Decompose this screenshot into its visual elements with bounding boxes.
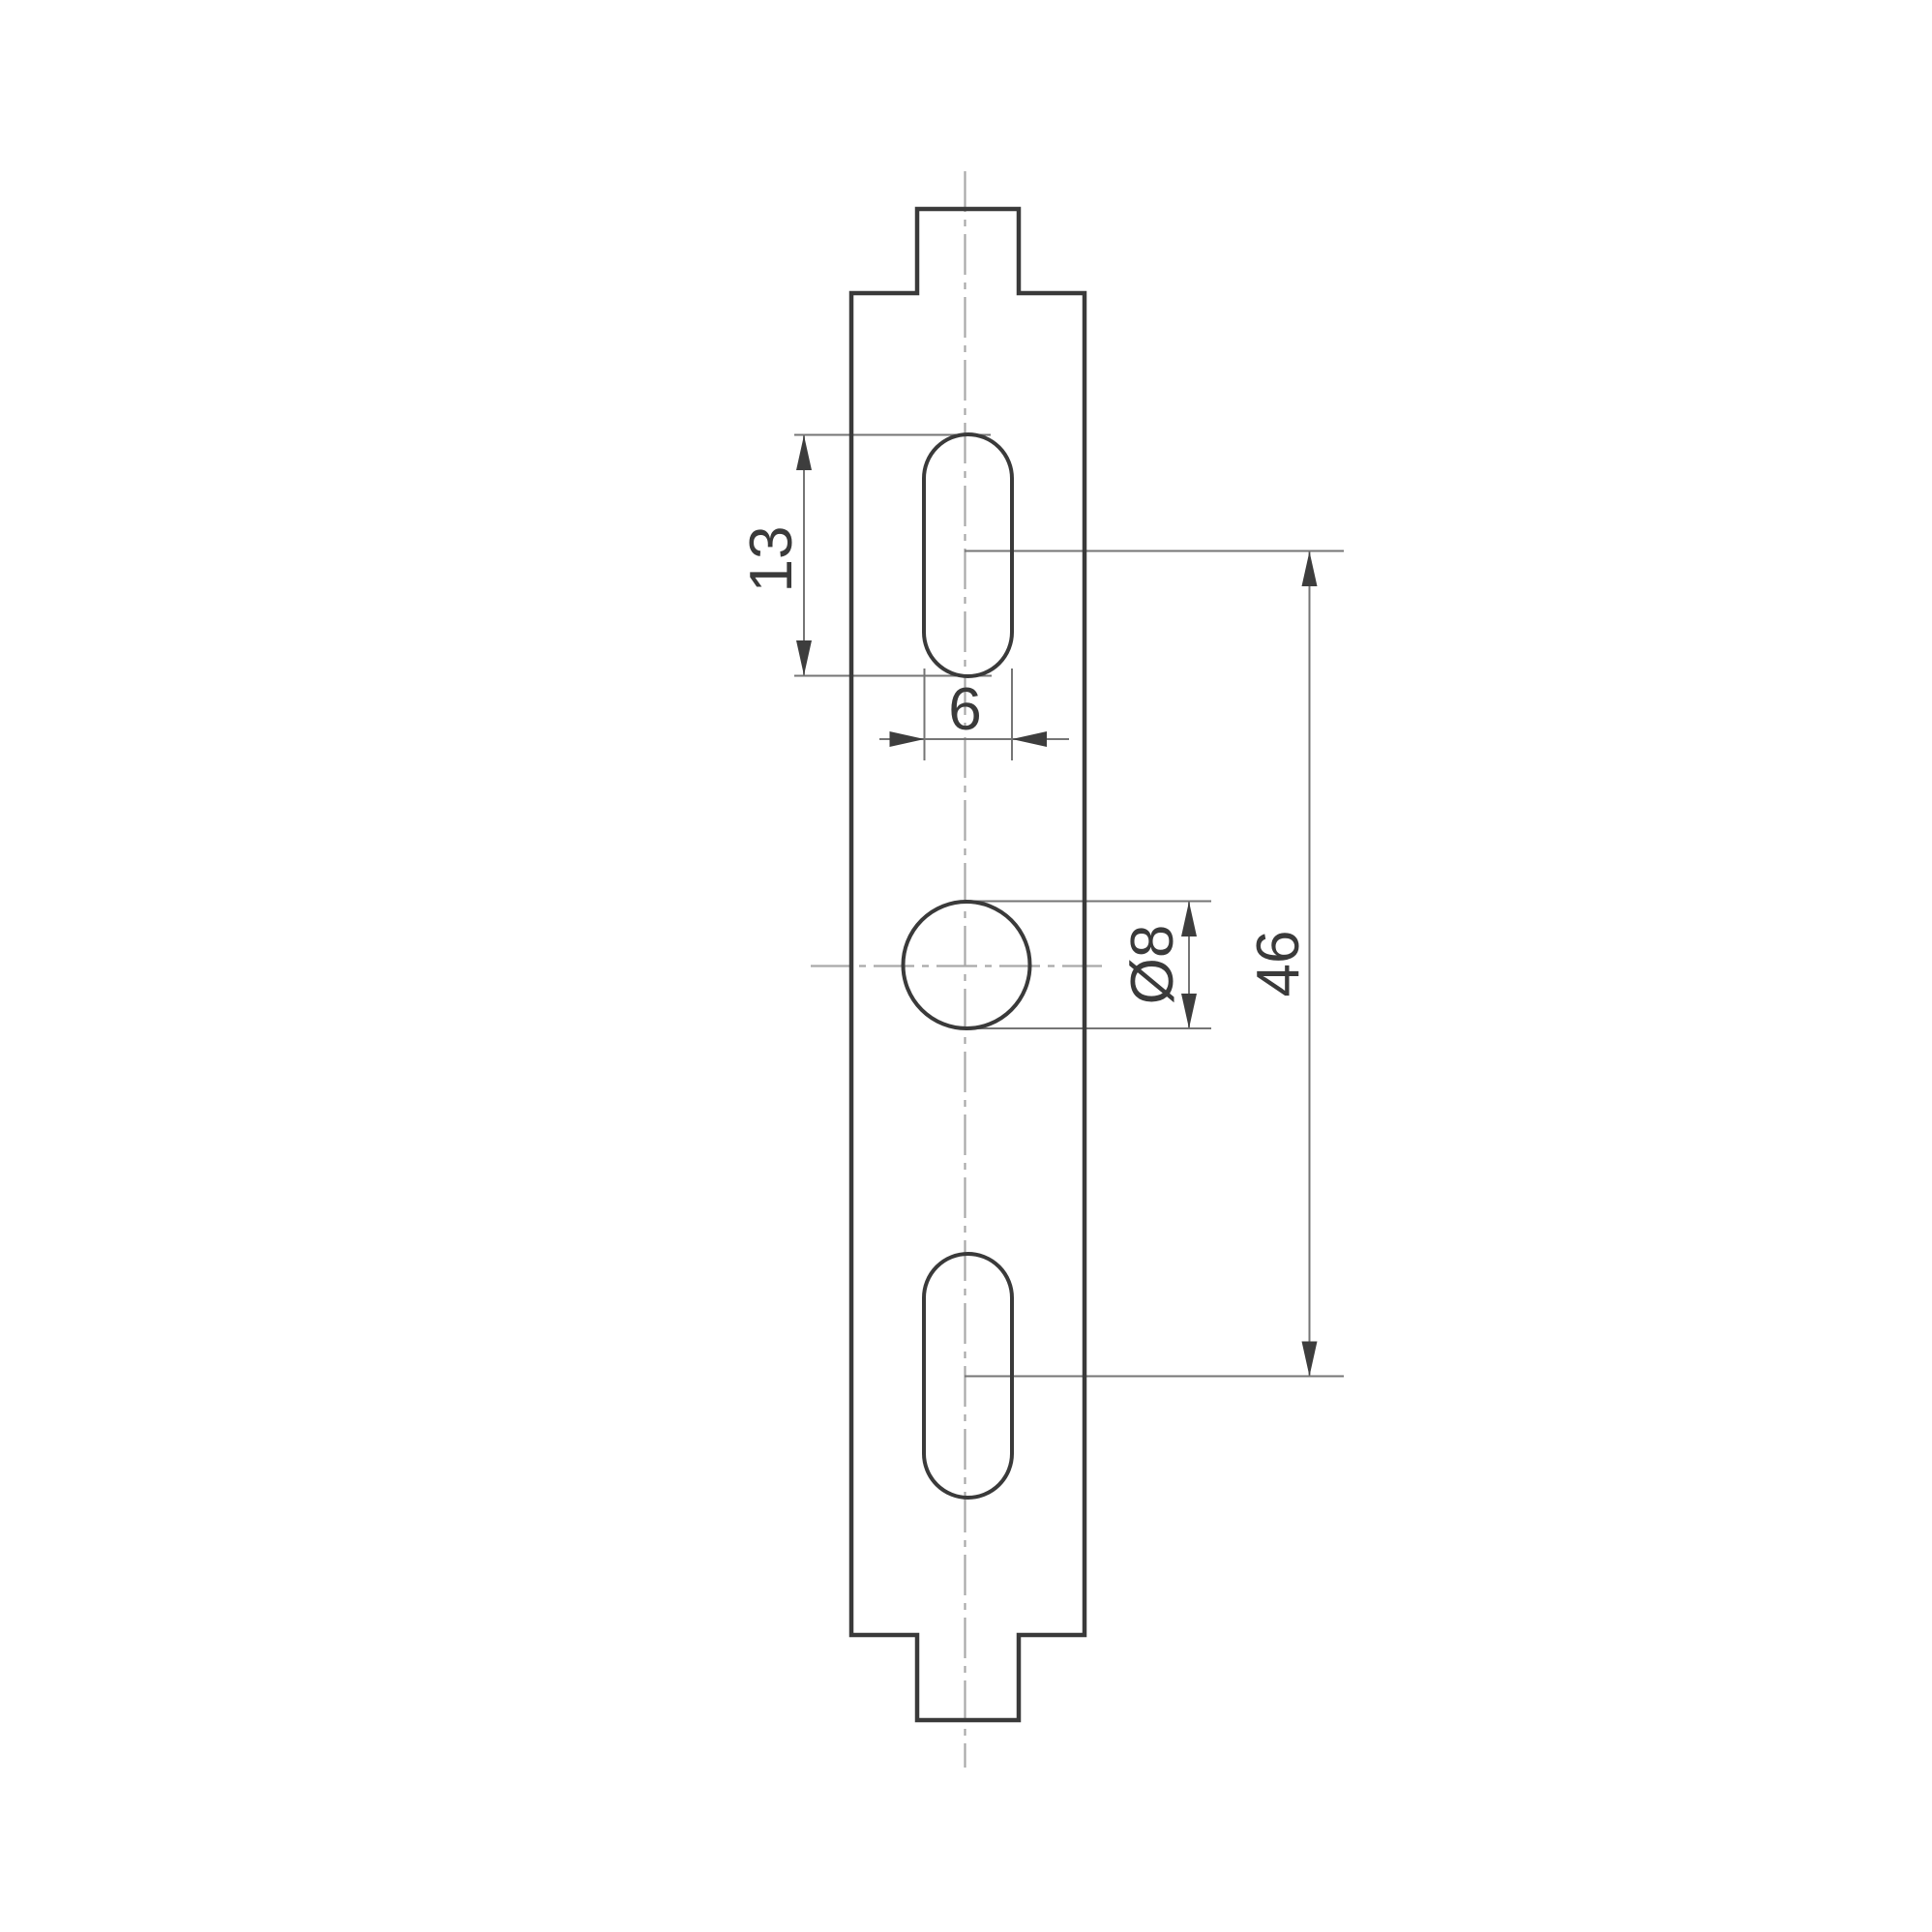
arrow-right-icon (890, 731, 925, 747)
arrow-down-icon (1302, 1342, 1318, 1377)
top-slot-hole (924, 434, 1012, 676)
dimension-label-6: 6 (948, 676, 981, 743)
arrow-down-icon (796, 640, 812, 675)
drawing-page: 13 6 Ø8 46 (0, 0, 1932, 1932)
arrow-left-icon (1012, 731, 1047, 747)
dimension-label-13: 13 (738, 526, 805, 593)
dimension-label-d8: Ø8 (1119, 925, 1186, 1005)
dimension-label-46: 46 (1245, 931, 1312, 997)
dimension-slot-length: 13 (738, 435, 992, 676)
dimension-slot-width: 6 (879, 669, 1069, 760)
dimension-hole-diameter: Ø8 (967, 902, 1211, 1029)
technical-drawing-canvas: 13 6 Ø8 46 (0, 0, 1932, 1932)
arrow-up-icon (1302, 551, 1318, 586)
arrow-up-icon (796, 435, 812, 470)
